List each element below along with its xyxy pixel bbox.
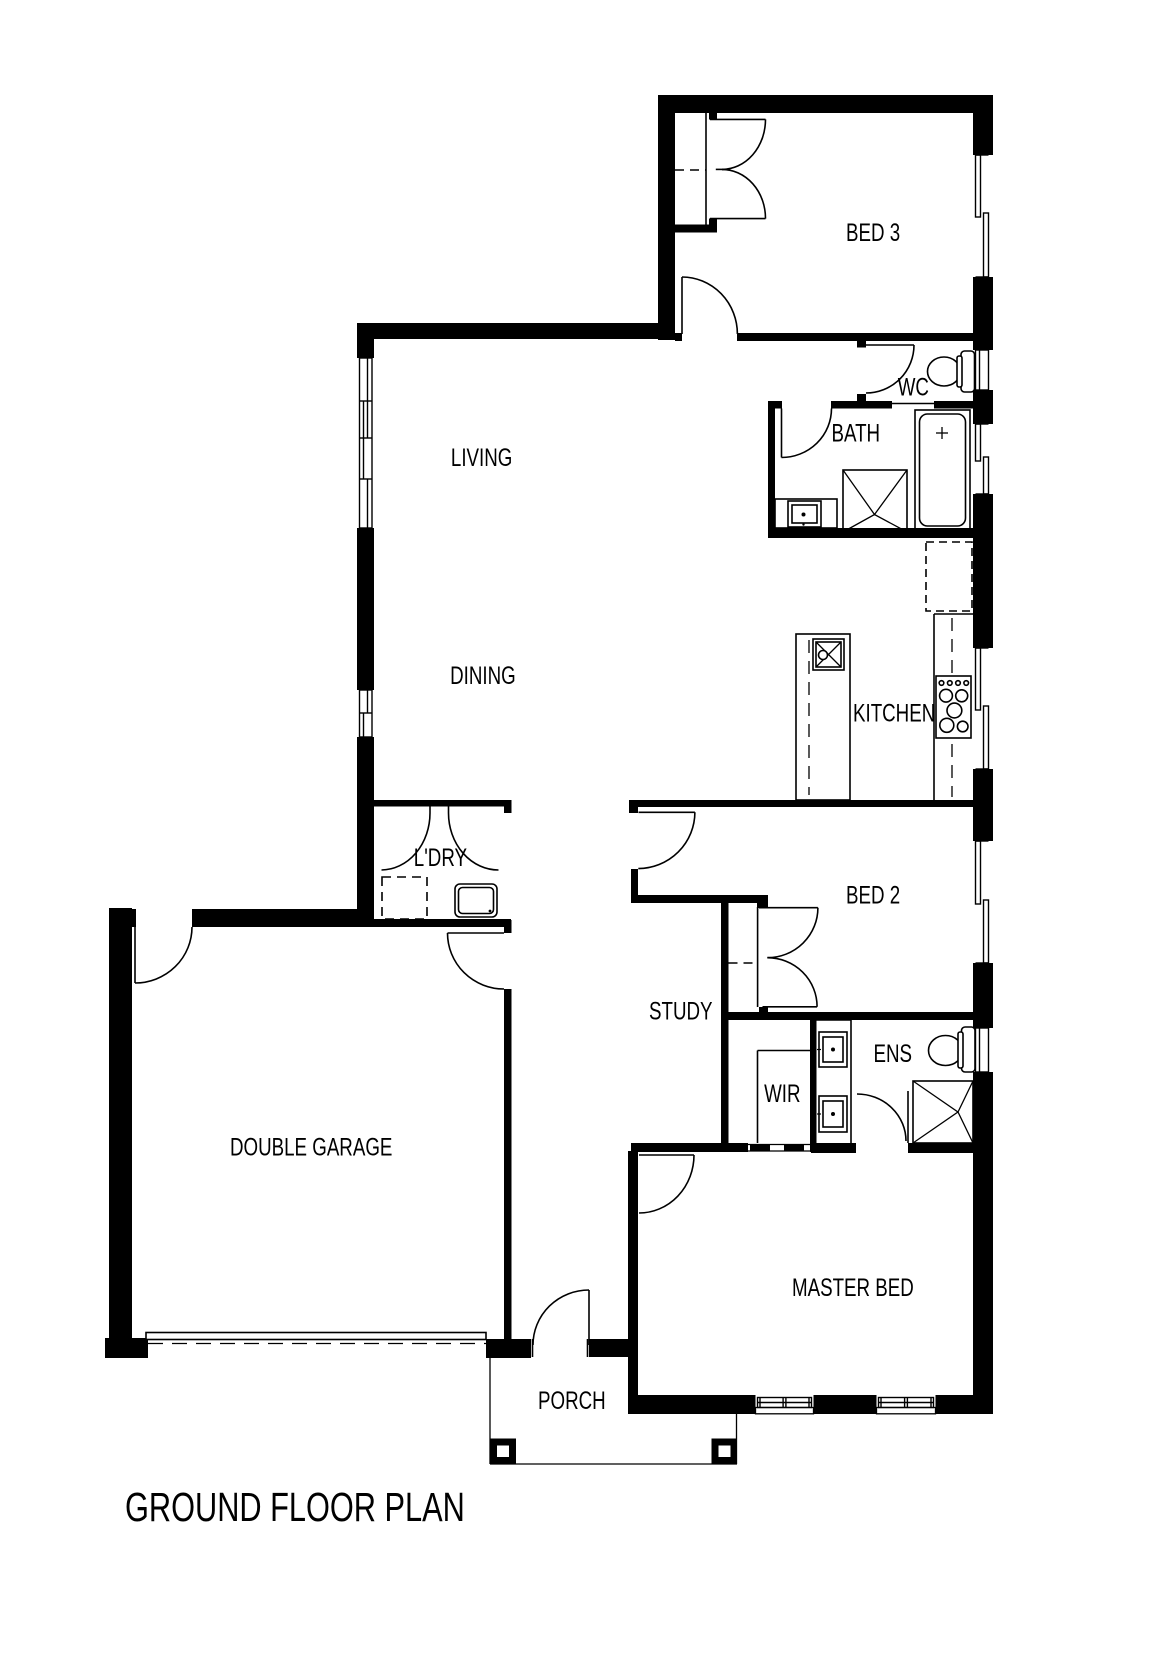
svg-text:ENS: ENS <box>874 1039 913 1067</box>
svg-text:GROUND FLOOR PLAN: GROUND FLOOR PLAN <box>125 1484 465 1530</box>
svg-text:BED 2: BED 2 <box>846 881 900 909</box>
svg-text:DINING: DINING <box>450 661 516 689</box>
svg-text:LIVING: LIVING <box>451 443 512 471</box>
svg-text:STUDY: STUDY <box>649 997 713 1025</box>
svg-text:PORCH: PORCH <box>538 1386 606 1414</box>
svg-text:L'DRY: L'DRY <box>414 844 467 872</box>
svg-text:KITCHEN: KITCHEN <box>853 699 935 727</box>
svg-text:WC: WC <box>898 373 929 401</box>
svg-text:BED 3: BED 3 <box>846 218 900 246</box>
svg-text:BATH: BATH <box>832 419 881 447</box>
svg-text:DOUBLE GARAGE: DOUBLE GARAGE <box>230 1133 392 1161</box>
svg-text:MASTER BED: MASTER BED <box>792 1273 914 1301</box>
svg-text:WIR: WIR <box>764 1079 800 1107</box>
